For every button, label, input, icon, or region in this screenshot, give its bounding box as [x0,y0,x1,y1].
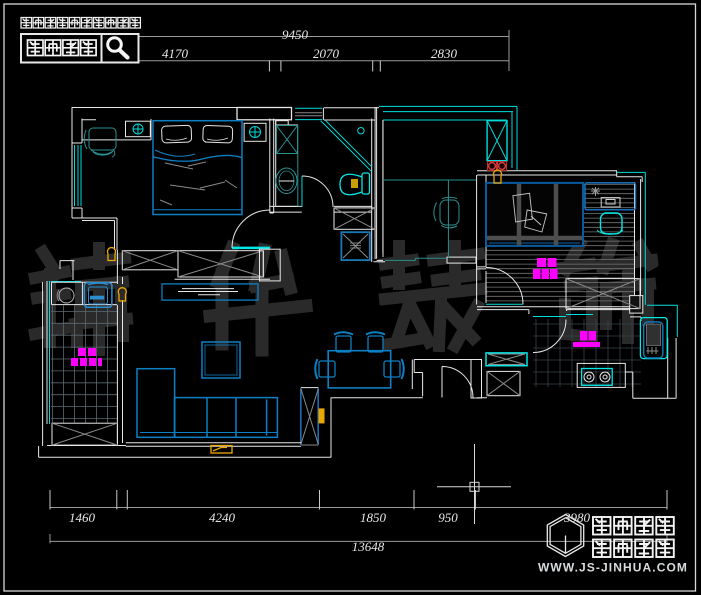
svg-text:2070: 2070 [313,46,340,61]
svg-text:WWW.JS-JINHUA.COM: WWW.JS-JINHUA.COM [538,561,688,575]
svg-text:13648: 13648 [352,539,385,554]
svg-text:1460: 1460 [69,510,96,525]
svg-text:9450: 9450 [282,27,309,42]
svg-text:3980: 3980 [563,510,591,525]
svg-text:4170: 4170 [162,46,189,61]
svg-text:2830: 2830 [431,46,458,61]
svg-text:950: 950 [438,510,458,525]
svg-text:1850: 1850 [360,510,387,525]
svg-text:4240: 4240 [209,510,236,525]
